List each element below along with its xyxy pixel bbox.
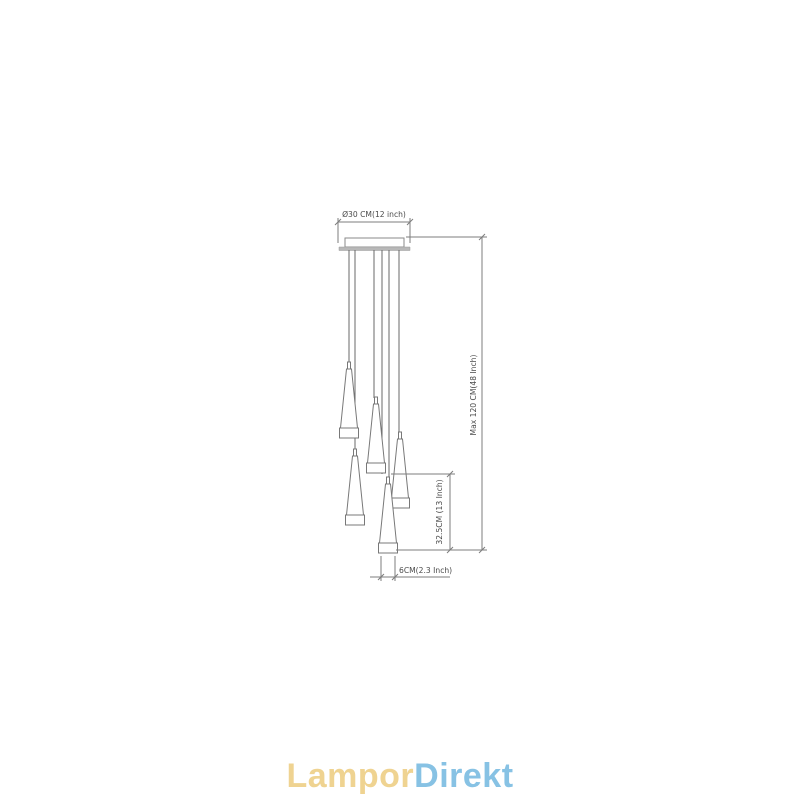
canopy-diameter-label: Ø30 CM(12 inch) [342, 210, 406, 219]
brand-logo: LamporDirekt [0, 757, 800, 796]
cone-pendant-3 [391, 432, 410, 508]
ceiling-canopy [339, 238, 410, 251]
cone-width-label: 6CM(2.3 Inch) [399, 566, 452, 575]
cone-pendant-4 [346, 449, 365, 525]
logo-text-direkt: Direkt [414, 757, 513, 795]
pendant-lamp-dimension-drawing: Ø30 CM(12 inch) [0, 0, 800, 800]
logo-text-lampor: Lampor [286, 757, 414, 795]
product-dimension-page: Ø30 CM(12 inch) [0, 0, 800, 800]
cone-length-label: 32.5CM (13 Inch) [435, 479, 444, 544]
canopy-plate [339, 247, 410, 251]
cone-pendant-1 [340, 362, 359, 438]
dimension-cone-width: 6CM(2.3 Inch) [370, 556, 452, 581]
cone-pendant-2 [367, 397, 386, 473]
max-height-label: Max 120 CM(48 Inch) [469, 355, 478, 436]
